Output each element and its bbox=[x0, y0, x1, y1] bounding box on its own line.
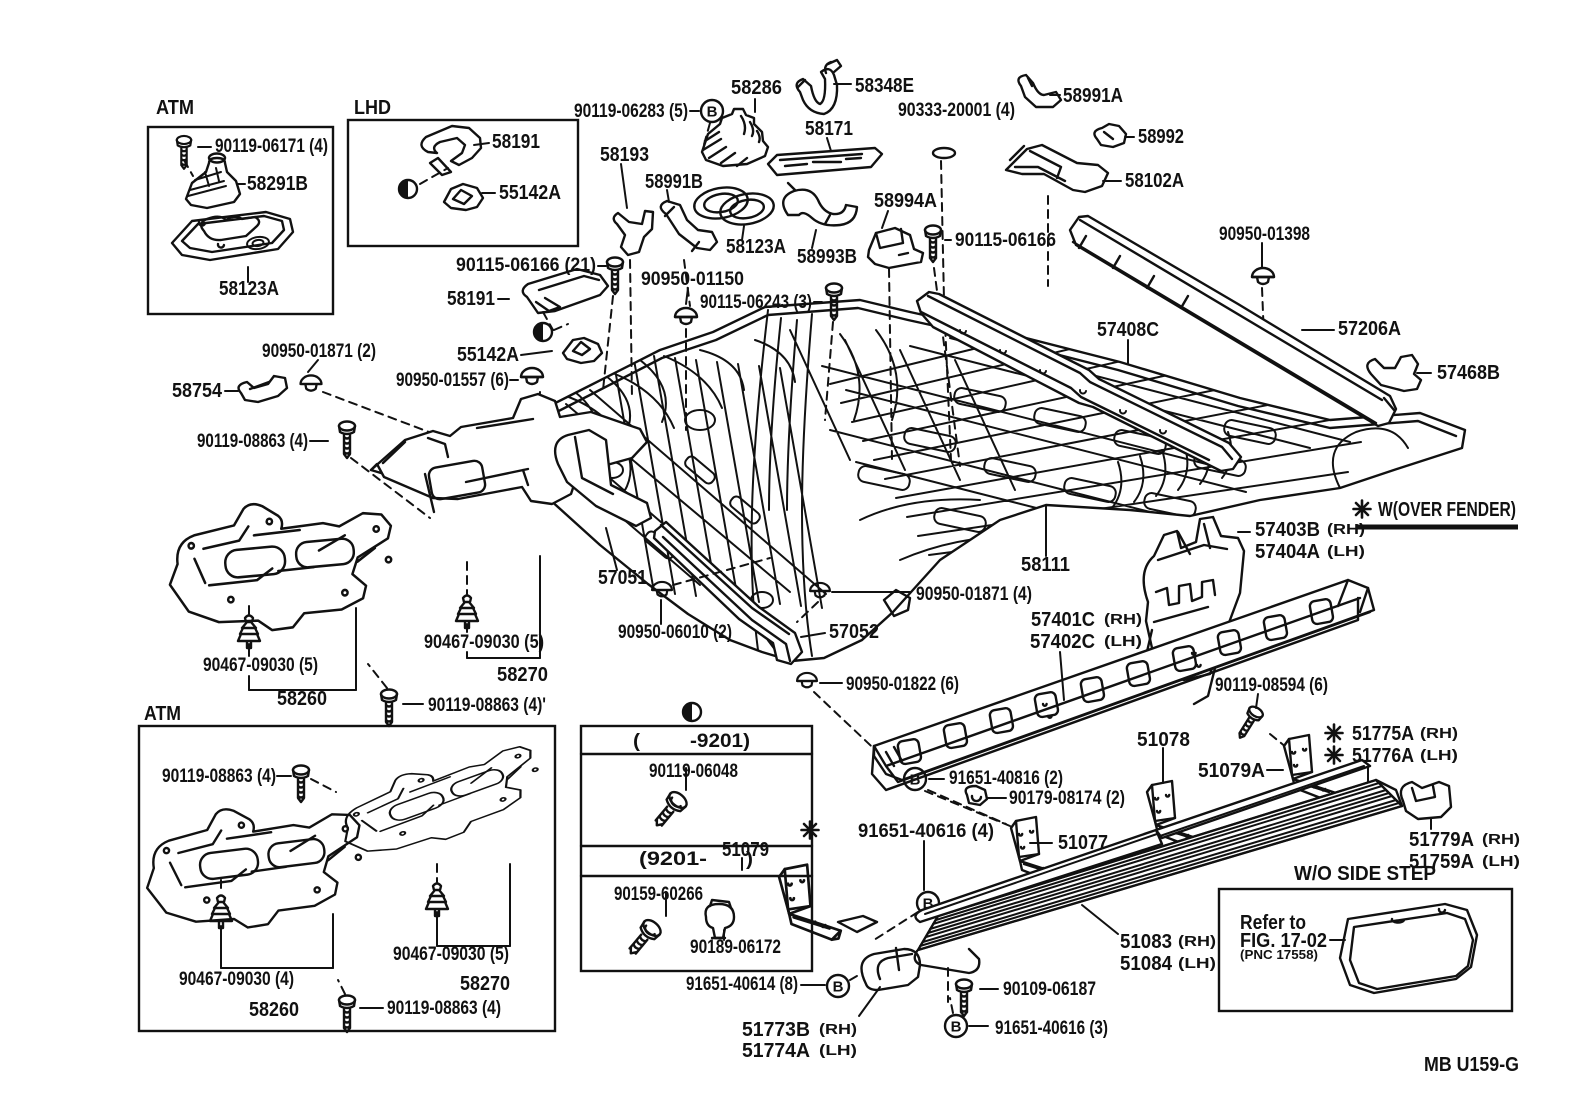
svg-text:(LH): (LH) bbox=[1104, 633, 1142, 650]
svg-text:51774A: 51774A bbox=[742, 1040, 810, 1062]
svg-text:(RH): (RH) bbox=[1104, 611, 1142, 628]
svg-text:(PNC 17558): (PNC 17558) bbox=[1240, 947, 1318, 962]
svg-text:90950-01150: 90950-01150 bbox=[641, 269, 744, 290]
svg-text:51083: 51083 bbox=[1120, 931, 1172, 953]
svg-text:90115-06166 (21): 90115-06166 (21) bbox=[456, 255, 596, 276]
svg-text:51775A: 51775A bbox=[1352, 723, 1414, 745]
svg-text:58123A: 58123A bbox=[726, 236, 786, 258]
svg-text:W/O SIDE STEP: W/O SIDE STEP bbox=[1294, 863, 1436, 885]
svg-text:90119-06283 (5): 90119-06283 (5) bbox=[574, 101, 688, 122]
svg-text:(LH): (LH) bbox=[819, 1042, 857, 1059]
svg-text:(LH): (LH) bbox=[1178, 955, 1216, 972]
svg-text:58270: 58270 bbox=[497, 664, 548, 686]
svg-text:58291B: 58291B bbox=[247, 173, 308, 195]
svg-text:90159-60266: 90159-60266 bbox=[614, 884, 703, 905]
svg-text:91651-40616 (3): 91651-40616 (3) bbox=[995, 1018, 1108, 1039]
svg-text:ATM: ATM bbox=[144, 703, 181, 725]
svg-text:58993B: 58993B bbox=[797, 246, 857, 268]
svg-text:57404A: 57404A bbox=[1255, 541, 1320, 563]
svg-text:90119-08594 (6): 90119-08594 (6) bbox=[1215, 675, 1328, 696]
svg-text:57403B: 57403B bbox=[1255, 519, 1320, 541]
svg-text:90950-01557 (6): 90950-01557 (6) bbox=[396, 370, 509, 391]
svg-text:90467-09030 (5): 90467-09030 (5) bbox=[424, 632, 544, 653]
svg-text:51078: 51078 bbox=[1137, 729, 1190, 751]
svg-text:(RH): (RH) bbox=[819, 1021, 857, 1038]
svg-text:90119-08863 (4)': 90119-08863 (4)' bbox=[428, 695, 546, 716]
svg-text:(RH): (RH) bbox=[1482, 831, 1520, 848]
svg-text:90119-08863 (4): 90119-08863 (4) bbox=[387, 998, 501, 1019]
svg-text:90179-08174 (2): 90179-08174 (2) bbox=[1009, 788, 1125, 809]
svg-text:90119-08863 (4): 90119-08863 (4) bbox=[162, 766, 276, 787]
svg-text:57408C: 57408C bbox=[1097, 319, 1159, 341]
svg-text:(RH): (RH) bbox=[1327, 521, 1365, 538]
svg-text:90950-01871 (4): 90950-01871 (4) bbox=[916, 584, 1032, 605]
svg-text:(RH): (RH) bbox=[1178, 933, 1216, 950]
svg-text:58754: 58754 bbox=[172, 380, 223, 402]
svg-text:57206A: 57206A bbox=[1338, 318, 1401, 340]
svg-text:(LH): (LH) bbox=[1482, 853, 1520, 870]
svg-text:90950-01871 (2): 90950-01871 (2) bbox=[262, 341, 376, 362]
svg-text:58111: 58111 bbox=[1021, 554, 1070, 576]
svg-text:90333-20001 (4): 90333-20001 (4) bbox=[898, 100, 1015, 121]
svg-text:W(OVER FENDER): W(OVER FENDER) bbox=[1378, 499, 1516, 521]
svg-text:58191: 58191 bbox=[492, 131, 540, 153]
svg-text:51079: 51079 bbox=[722, 839, 769, 861]
svg-text:(LH): (LH) bbox=[1327, 543, 1365, 560]
svg-text:51084: 51084 bbox=[1120, 953, 1173, 975]
svg-text:51077: 51077 bbox=[1058, 832, 1108, 854]
svg-text:90467-09030 (4): 90467-09030 (4) bbox=[179, 969, 294, 990]
svg-text:58123A: 58123A bbox=[219, 278, 279, 300]
svg-text:90950-06010 (2): 90950-06010 (2) bbox=[618, 622, 732, 643]
svg-text:MB U159-G: MB U159-G bbox=[1424, 1054, 1519, 1076]
svg-text:91651-40816 (2): 91651-40816 (2) bbox=[949, 768, 1063, 789]
svg-text:58991B: 58991B bbox=[645, 171, 703, 193]
svg-text:90109-06187: 90109-06187 bbox=[1003, 979, 1096, 1000]
svg-text:57052: 57052 bbox=[829, 621, 879, 643]
svg-text:57468B: 57468B bbox=[1437, 362, 1500, 384]
svg-text:58191: 58191 bbox=[447, 288, 495, 310]
svg-text:91651-40614 (8): 91651-40614 (8) bbox=[686, 974, 798, 995]
svg-text:90950-01398: 90950-01398 bbox=[1219, 224, 1310, 245]
svg-text:90467-09030 (5): 90467-09030 (5) bbox=[393, 944, 509, 965]
svg-text:90119-06048: 90119-06048 bbox=[649, 761, 738, 782]
svg-text:91651-40616 (4): 91651-40616 (4) bbox=[858, 821, 994, 842]
svg-text:51773B: 51773B bbox=[742, 1019, 810, 1041]
svg-text:-9201): -9201) bbox=[690, 731, 750, 752]
svg-text:55142A: 55142A bbox=[457, 344, 519, 366]
svg-text:58991A: 58991A bbox=[1063, 85, 1123, 107]
svg-text:(: ( bbox=[633, 731, 641, 752]
svg-text:51779A: 51779A bbox=[1409, 829, 1474, 851]
svg-text:58994A: 58994A bbox=[874, 190, 937, 212]
svg-text:58193: 58193 bbox=[600, 144, 649, 166]
svg-text:(RH): (RH) bbox=[1420, 725, 1458, 742]
svg-text:55142A: 55142A bbox=[499, 182, 561, 204]
svg-text:58348E: 58348E bbox=[855, 75, 914, 97]
svg-text:57402C: 57402C bbox=[1030, 631, 1095, 653]
svg-text:57401C: 57401C bbox=[1031, 609, 1095, 631]
svg-text:90115-06243 (3): 90115-06243 (3) bbox=[700, 292, 812, 313]
svg-text:58102A: 58102A bbox=[1125, 170, 1184, 192]
svg-text:LHD: LHD bbox=[354, 97, 391, 119]
svg-text:ATM: ATM bbox=[156, 97, 194, 119]
svg-text:90467-09030 (5): 90467-09030 (5) bbox=[203, 655, 318, 676]
svg-text:90950-01822 (6): 90950-01822 (6) bbox=[846, 674, 959, 695]
svg-text:57051: 57051 bbox=[598, 567, 647, 589]
svg-text:58992: 58992 bbox=[1138, 126, 1184, 148]
svg-text:58286: 58286 bbox=[731, 77, 782, 99]
svg-text:90189-06172: 90189-06172 bbox=[690, 937, 781, 958]
svg-text:(9201-: (9201- bbox=[639, 849, 707, 870]
svg-text:90119-08863 (4): 90119-08863 (4) bbox=[197, 431, 308, 452]
svg-text:90119-06171 (4): 90119-06171 (4) bbox=[215, 136, 328, 157]
svg-text:(LH): (LH) bbox=[1420, 747, 1458, 764]
svg-text:58171: 58171 bbox=[805, 118, 853, 140]
svg-text:58260: 58260 bbox=[249, 999, 299, 1021]
svg-text:90115-06166: 90115-06166 bbox=[955, 230, 1056, 251]
svg-text:58270: 58270 bbox=[460, 973, 510, 995]
svg-text:51776A: 51776A bbox=[1352, 745, 1414, 767]
svg-text:51079A: 51079A bbox=[1198, 760, 1265, 782]
svg-text:58260: 58260 bbox=[277, 688, 327, 710]
